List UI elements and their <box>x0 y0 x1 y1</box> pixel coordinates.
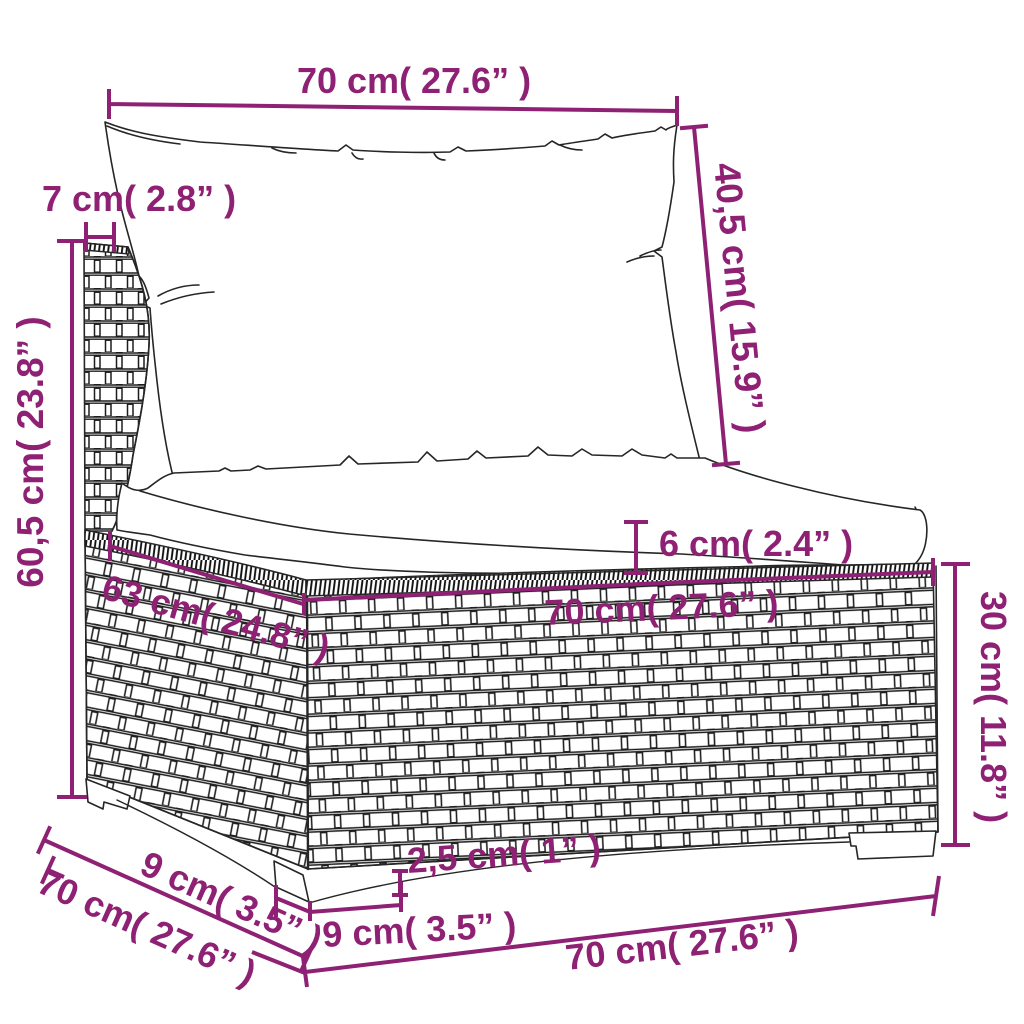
svg-text:70 cm( 27.6” ): 70 cm( 27.6” ) <box>297 60 531 101</box>
svg-text:6 cm( 2.4” ): 6 cm( 2.4” ) <box>659 523 853 564</box>
svg-text:60,5 cm( 23.8” ): 60,5 cm( 23.8” ) <box>10 316 51 587</box>
svg-text:30 cm( 11.8” ): 30 cm( 11.8” ) <box>973 591 1014 823</box>
svg-text:7 cm( 2.8” ): 7 cm( 2.8” ) <box>42 178 236 219</box>
